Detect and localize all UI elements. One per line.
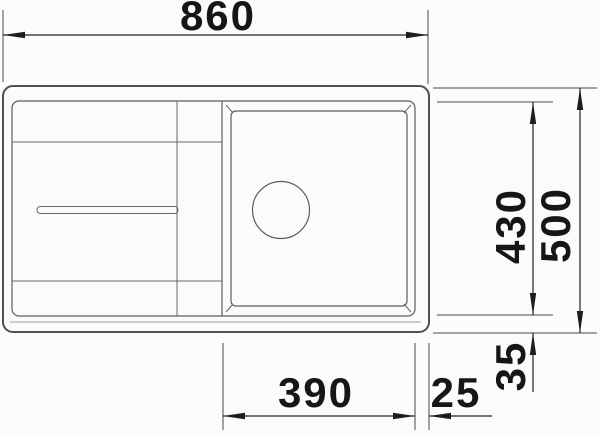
bowl-bevel-corner-tl [226,105,233,113]
technical-drawing-page: 860 500 430 35 390 25 [0,0,600,436]
dimension-label-860: 860 [180,0,256,39]
dimension-label-35: 35 [487,341,534,392]
dimension-860: 860 [3,0,428,84]
bowl-bevel-corner-br [404,304,411,312]
drainboard-drain-groove [37,207,178,214]
dimension-label-500: 500 [532,187,579,263]
dimension-390: 390 [223,343,415,430]
drainboard [12,101,222,316]
dimension-label-430: 430 [487,188,534,264]
bowl [222,101,411,316]
dimension-label-390: 390 [278,369,354,416]
bowl-inner-bevel [231,111,407,306]
drain-hole [253,182,310,239]
bowl-bevel-corner-bl [226,304,233,312]
sink-outer-rim [3,86,429,332]
bowl-bevel-corner-tr [404,105,411,113]
dimension-25: 25 [429,343,492,430]
sink-body [3,86,429,332]
sink-technical-drawing: 860 500 430 35 390 25 [0,0,600,436]
dimension-label-25: 25 [431,369,482,416]
recessed-area-outline [12,101,415,316]
dimension-35: 35 [487,333,534,392]
